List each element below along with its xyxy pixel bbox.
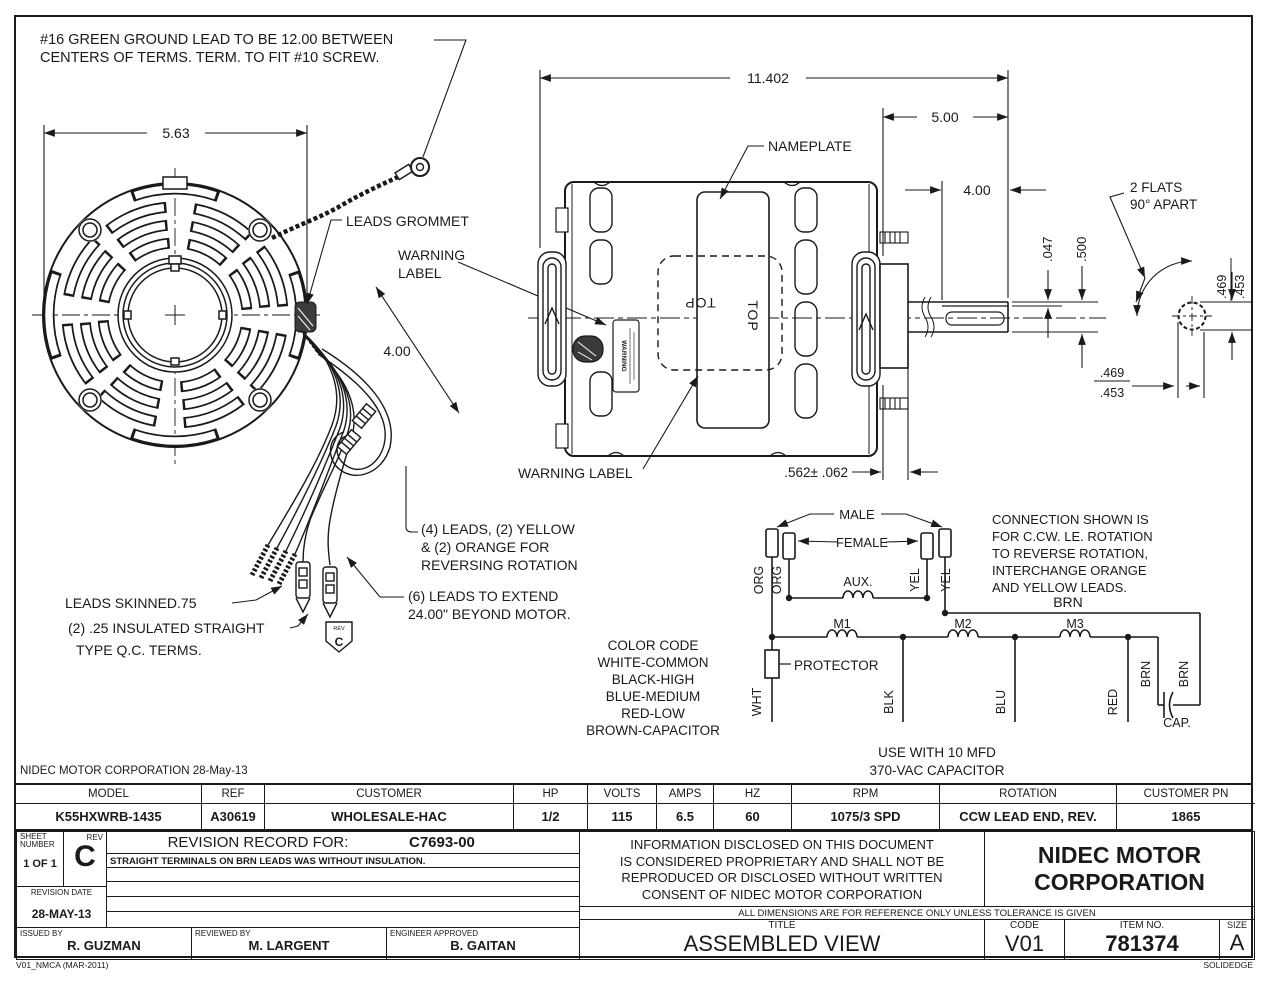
warning-label-1a: WARNING	[398, 247, 465, 263]
shaft	[908, 297, 1008, 337]
ground-note-line1: #16 GREEN GROUND LEAD TO BE 12.00 BETWEE…	[40, 32, 393, 48]
code-value: V01	[985, 931, 1064, 957]
color-code-2: WHITE-COMMON	[598, 655, 709, 670]
proprietary-note-cell: INFORMATION DISCLOSED ON THIS DOCUMENT I…	[579, 831, 985, 907]
color-code-3: BLACK-HIGH	[612, 672, 695, 687]
company-line-2: CORPORATION	[985, 869, 1254, 896]
connection-note-3: TO REVERSE ROTATION,	[992, 546, 1148, 561]
revision-row-2	[106, 867, 580, 882]
capacitor-note-2: 370-VAC CAPACITOR	[869, 763, 1004, 778]
nameplate-label: NAMEPLATE	[768, 138, 852, 154]
spec-value-model: K55HXWRB-1435	[16, 804, 202, 829]
spec-value-rotation: CCW LEAD END, REV.	[940, 804, 1117, 829]
capacitor-note-1: USE WITH 10 MFD	[878, 745, 996, 760]
issued-by-cell: ISSUED BY R. GUZMAN	[16, 927, 192, 960]
issued-by-value: R. GUZMAN	[17, 938, 191, 953]
top-marking-reversed: TOP	[684, 295, 716, 311]
spec-value-rpm: 1075/3 SPD	[792, 804, 940, 829]
title-cell: TITLE ASSEMBLED VIEW	[579, 919, 985, 960]
spec-value-ref: A30619	[202, 804, 265, 829]
color-code-4: BLUE-MEDIUM	[606, 689, 701, 704]
warning-label-side: WARNING LABEL	[518, 465, 633, 481]
rev-tag: REV C	[326, 622, 352, 652]
red-label: RED	[1106, 689, 1120, 715]
qc-terms-line1: (2) .25 INSULATED STRAIGHT	[68, 620, 265, 636]
female-label: FEMALE	[836, 535, 888, 550]
proprietary-line-4: CONSENT OF NIDEC MOTOR CORPORATION	[580, 887, 984, 904]
six-leads-line2: 24.00" BEYOND MOTOR.	[408, 606, 571, 622]
spec-header-rpm: RPM	[792, 785, 940, 804]
four-leads-line1: (4) LEADS, (2) YELLOW	[421, 521, 576, 537]
shaft-end-labels: 2 FLATS 90° APART .469 .453 .469 .453	[1100, 180, 1247, 400]
revision-row-1: STRAIGHT TERMINALS ON BRN LEADS WAS WITH…	[106, 853, 580, 868]
connection-note-5: AND YELLOW LEADS.	[992, 580, 1127, 595]
warning-label-1b: LABEL	[398, 265, 442, 281]
color-code-5: RED-LOW	[621, 706, 685, 721]
revision-row-5	[106, 911, 580, 928]
ground-lead	[272, 40, 466, 238]
spec-header-amps: AMPS	[657, 785, 714, 804]
item-no-cell: ITEM NO. 781374	[1064, 919, 1220, 960]
dim-4-00-flat: 4.00	[963, 182, 990, 198]
aux-label: AUX.	[843, 575, 872, 589]
leads-skinned-label: LEADS SKINNED.75	[65, 595, 197, 611]
four-leads-line3: REVERSING ROTATION	[421, 557, 578, 573]
tolerance-note: ALL DIMENSIONS ARE FOR REFERENCE ONLY UN…	[580, 907, 1254, 919]
ground-note-line2: CENTERS OF TERMS. TERM. TO FIT #10 SCREW…	[40, 50, 379, 66]
template-code: V01_NMCA (MAR-2011)	[16, 960, 108, 970]
side-view: TOP TOP WARNING	[528, 182, 1106, 456]
rev-value: C	[64, 840, 106, 874]
title-value: ASSEMBLED VIEW	[580, 931, 984, 957]
spec-header-volts: VOLTS	[588, 785, 657, 804]
proprietary-line-1: INFORMATION DISCLOSED ON THIS DOCUMENT	[580, 837, 984, 854]
reviewed-by-cell: REVIEWED BY M. LARGENT	[191, 927, 387, 960]
revision-date-value: 28-MAY-13	[17, 907, 106, 921]
front-view	[32, 168, 324, 464]
flats-note-line2: 90° APART	[1130, 197, 1197, 212]
brn-label: BRN	[1053, 594, 1083, 610]
org-label-1: ORG	[752, 566, 766, 594]
color-code-1: COLOR CODE	[608, 638, 699, 653]
side-view-dimensions	[540, 70, 1098, 480]
right-mount-rings	[852, 252, 880, 386]
issued-by-label: ISSUED BY	[17, 928, 191, 938]
proprietary-line-2: IS CONSIDERED PROPRIETARY AND SHALL NOT …	[580, 854, 984, 871]
reviewed-by-value: M. LARGENT	[192, 938, 386, 953]
revision-date-label: REVISION DATE	[17, 887, 106, 897]
company-cell: NIDEC MOTOR CORPORATION	[984, 831, 1255, 907]
dim-469-bottom: .469	[1100, 366, 1124, 380]
spec-header-hp: HP	[514, 785, 588, 804]
side-view-labels: 11.402 NAMEPLATE 5.00 4.00 .047 .500 WAR…	[518, 70, 1089, 481]
dim-469-right: .469	[1215, 275, 1229, 299]
top-marking: TOP	[745, 300, 761, 332]
spec-header-rotation: ROTATION	[940, 785, 1117, 804]
spec-table: MODEL REF CUSTOMER HP VOLTS AMPS HZ RPM …	[14, 783, 1253, 831]
item-no-label: ITEM NO.	[1065, 920, 1219, 931]
spec-header-model: MODEL	[16, 785, 202, 804]
title-block: SHEETNUMBER 1 OF 1 REV C REVISION RECORD…	[14, 829, 1253, 958]
revision-record-number: C7693-00	[409, 834, 579, 851]
warning-sticker: WARNING	[613, 320, 639, 392]
code-label: CODE	[985, 920, 1064, 931]
revision-record-label: REVISION RECORD FOR:	[107, 834, 409, 851]
spec-value-hp: 1/2	[514, 804, 588, 829]
reviewed-by-label: REVIEWED BY	[192, 928, 386, 938]
sheet-label: SHEETNUMBER	[17, 832, 63, 849]
spec-header-hz: HZ	[714, 785, 792, 804]
dim-500: .500	[1074, 237, 1089, 262]
connection-note-4: INTERCHANGE ORANGE	[992, 563, 1147, 578]
dim-453-right: .453	[1233, 275, 1247, 299]
qc-terms-line2: TYPE Q.C. TERMS.	[76, 642, 202, 658]
dim-5-00: 5.00	[931, 109, 958, 125]
org-label-2: ORG	[770, 566, 784, 594]
brn-label-v2: BRN	[1177, 661, 1191, 687]
m2-label: M2	[954, 617, 971, 631]
spec-header-customer-pn: CUSTOMER PN	[1117, 785, 1255, 804]
company-line-1: NIDEC MOTOR	[985, 842, 1254, 869]
sheet-value: 1 OF 1	[17, 858, 63, 870]
spec-value-customer-pn: 1865	[1117, 804, 1255, 829]
spec-header-ref: REF	[202, 785, 265, 804]
dim-5-63: 5.63	[162, 125, 189, 141]
lead-bundle: REV C	[252, 330, 391, 652]
six-leads-line1: (6) LEADS TO EXTEND	[408, 588, 558, 604]
cad-system-label: SOLIDEDGE	[1203, 960, 1253, 970]
revision-date-cell: REVISION DATE 28-MAY-13	[16, 886, 107, 928]
m3-label: M3	[1066, 617, 1083, 631]
svg-text:WARNING: WARNING	[620, 340, 627, 371]
dim-11-402: 11.402	[747, 70, 789, 86]
protector-label: PROTECTOR	[794, 658, 879, 673]
dim-047: .047	[1040, 237, 1055, 262]
tolerance-row: ALL DIMENSIONS ARE FOR REFERENCE ONLY UN…	[579, 906, 1255, 920]
spec-value-customer: WHOLESALE-HAC	[265, 804, 514, 829]
rev-tag-small-label: REV	[333, 626, 345, 632]
proprietary-line-3: REPRODUCED OR DISCLOSED WITHOUT WRITTEN	[580, 870, 984, 887]
cap-label: CAP.	[1163, 716, 1191, 730]
leads-grommet-label: LEADS GROMMET	[346, 213, 469, 229]
corporation-date-line: NIDEC MOTOR CORPORATION 28-May-13	[20, 765, 248, 777]
spec-value-volts: 115	[588, 804, 657, 829]
qc-terminal-2	[323, 567, 337, 617]
code-cell: CODE V01	[984, 919, 1065, 960]
four-leads-line2: & (2) ORANGE FOR	[421, 539, 549, 555]
rev-cell: REV C	[63, 831, 107, 887]
qc-terminal-1	[296, 562, 310, 612]
size-label: SIZE	[1220, 920, 1254, 930]
dim-453-bottom: .453	[1100, 386, 1124, 400]
male-label: MALE	[839, 507, 875, 522]
spec-header-customer: CUSTOMER	[265, 785, 514, 804]
title-label: TITLE	[580, 920, 984, 931]
color-code-6: BROWN-CAPACITOR	[586, 723, 720, 738]
revision-record-header: REVISION RECORD FOR: C7693-00	[106, 831, 580, 854]
sheet-number-cell: SHEETNUMBER 1 OF 1	[16, 831, 64, 887]
dim-4-00-leads: 4.00	[383, 343, 410, 359]
revision-row-4	[106, 896, 580, 912]
item-no-value: 781374	[1065, 931, 1219, 957]
schematic-labels: MALE FEMALE AUX. ORG ORG YEL YEL BRN M1 …	[586, 507, 1191, 778]
size-cell: SIZE A	[1219, 919, 1255, 960]
revision-note: STRAIGHT TERMINALS ON BRN LEADS WAS WITH…	[107, 854, 579, 867]
flats-note-line1: 2 FLATS	[1130, 180, 1182, 195]
engineer-approved-value: B. GAITAN	[387, 938, 579, 953]
engineer-approved-label: ENGINEER APPROVED	[387, 928, 579, 938]
m1-label: M1	[833, 617, 850, 631]
yel-label-2: YEL	[939, 568, 953, 592]
revision-row-3	[106, 881, 580, 897]
spec-value-amps: 6.5	[657, 804, 714, 829]
rev-tag-letter: C	[335, 635, 344, 649]
engineer-approved-cell: ENGINEER APPROVED B. GAITAN	[386, 927, 580, 960]
yel-label-1: YEL	[908, 568, 922, 592]
brn-label-v1: BRN	[1139, 661, 1153, 687]
wht-label: WHT	[750, 687, 764, 716]
dim-562: .562± .062	[784, 465, 848, 480]
blu-label: BLU	[994, 690, 1008, 714]
left-mount-rings	[538, 252, 566, 386]
blk-label: BLK	[882, 690, 896, 714]
connection-note-2: FOR C.CW. LE. ROTATION	[992, 529, 1153, 544]
connection-note-1: CONNECTION SHOWN IS	[992, 512, 1149, 527]
size-value: A	[1220, 930, 1254, 956]
spec-value-hz: 60	[714, 804, 792, 829]
